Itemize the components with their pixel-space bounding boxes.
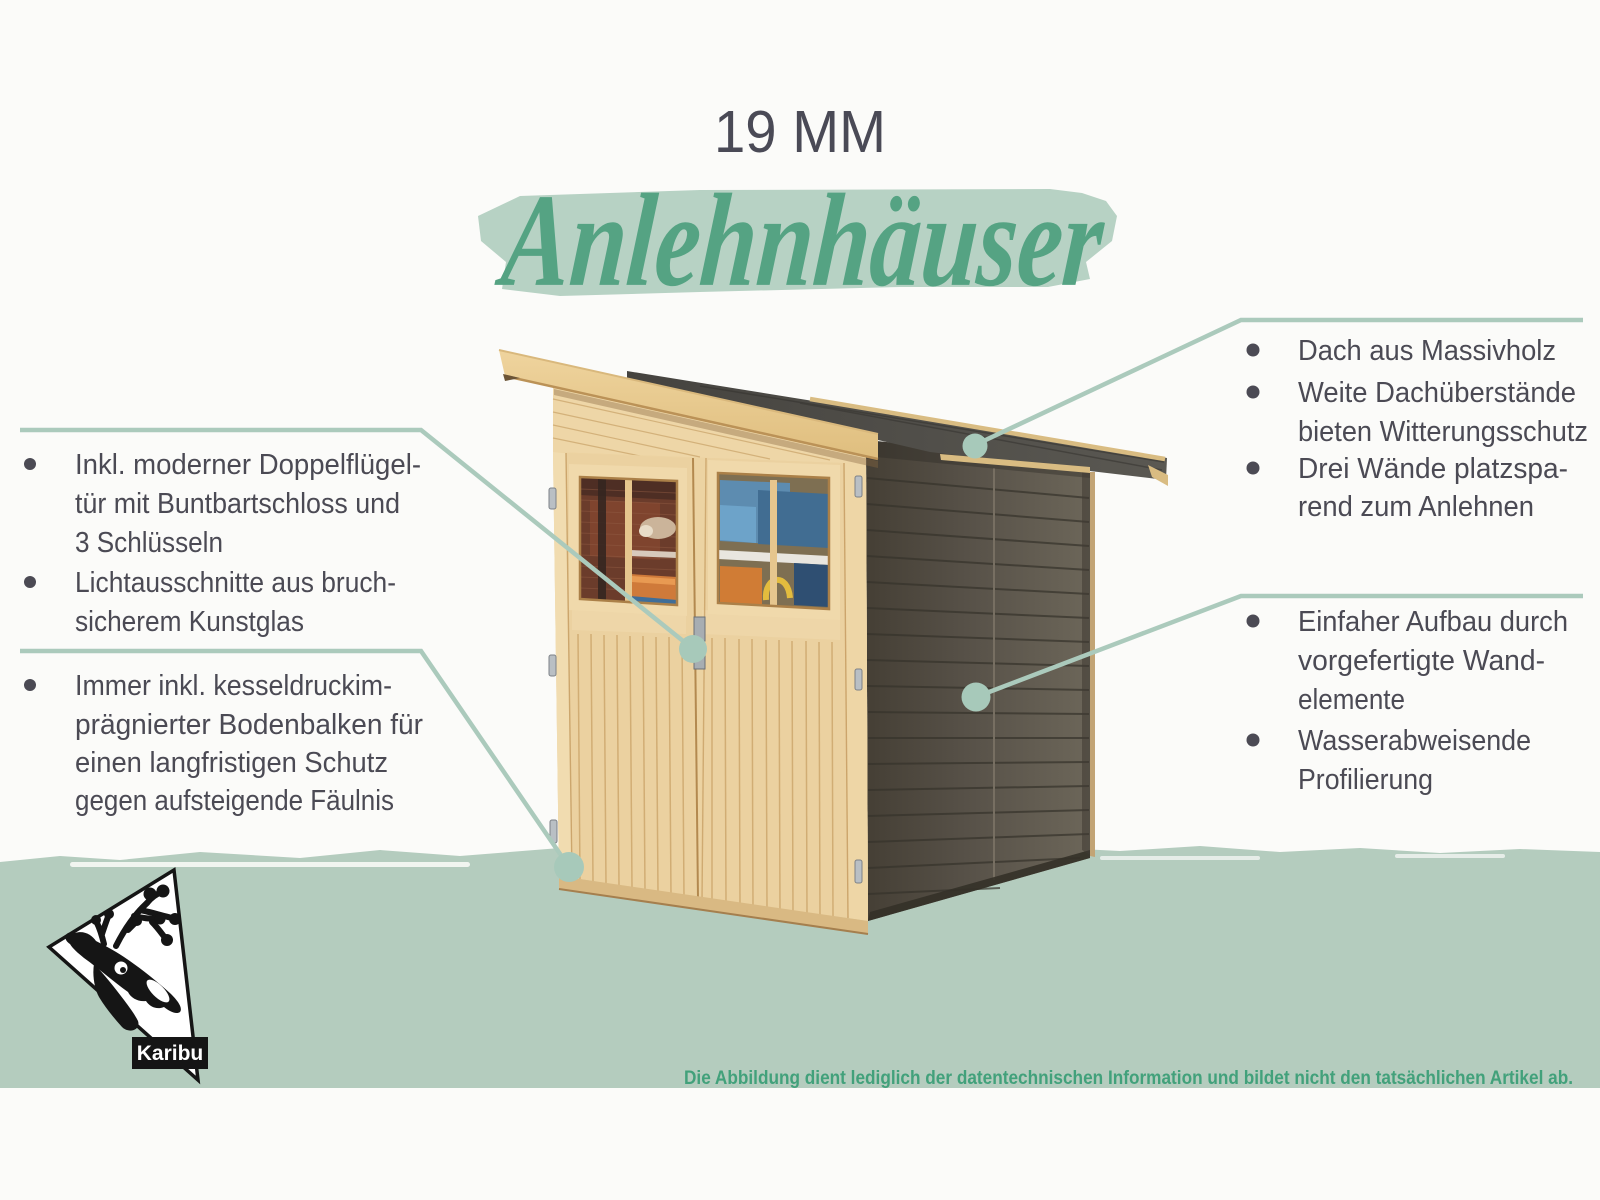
svg-text:Karibu: Karibu	[137, 1042, 204, 1065]
svg-text:rend zum Anlehnen: rend zum Anlehnen	[1298, 491, 1534, 523]
svg-text:einen langfristigen Schutz: einen langfristigen Schutz	[75, 747, 388, 779]
svg-text:elemente: elemente	[1298, 684, 1405, 716]
svg-text:19 MM: 19 MM	[714, 99, 886, 165]
svg-text:Immer inkl. kesseldruckim-: Immer inkl. kesseldruckim-	[75, 670, 392, 702]
svg-text:Wasserabweisende: Wasserabweisende	[1298, 725, 1531, 757]
svg-text:Inkl. moderner Doppelflügel-: Inkl. moderner Doppelflügel-	[75, 449, 421, 481]
svg-text:bieten Witterungsschutz: bieten Witterungsschutz	[1298, 416, 1588, 448]
svg-text:sicherem Kunstglas: sicherem Kunstglas	[75, 606, 304, 638]
svg-text:gegen aufsteigende Fäulnis: gegen aufsteigende Fäulnis	[75, 785, 394, 817]
svg-text:tür mit Buntbartschloss und: tür mit Buntbartschloss und	[75, 488, 400, 520]
svg-text:Die Abbildung dient lediglich: Die Abbildung dient lediglich der datent…	[684, 1068, 1573, 1089]
svg-text:Lichtausschnitte aus bruch-: Lichtausschnitte aus bruch-	[75, 567, 396, 599]
svg-text:Drei Wände platzspa-: Drei Wände platzspa-	[1298, 453, 1568, 485]
svg-text:Einfaher Aufbau durch: Einfaher Aufbau durch	[1298, 606, 1568, 638]
svg-text:Weite Dachüberstände: Weite Dachüberstände	[1298, 377, 1576, 409]
svg-text:Anlehnhäuser: Anlehnhäuser	[492, 168, 1109, 315]
svg-text:vorgefertigte Wand-: vorgefertigte Wand-	[1298, 645, 1545, 677]
svg-text:3 Schlüsseln: 3 Schlüsseln	[75, 527, 223, 559]
svg-text:Dach aus Massivholz: Dach aus Massivholz	[1298, 335, 1556, 367]
svg-text:Profilierung: Profilierung	[1298, 764, 1433, 796]
svg-text:prägnierter Bodenbalken für: prägnierter Bodenbalken für	[75, 709, 423, 741]
